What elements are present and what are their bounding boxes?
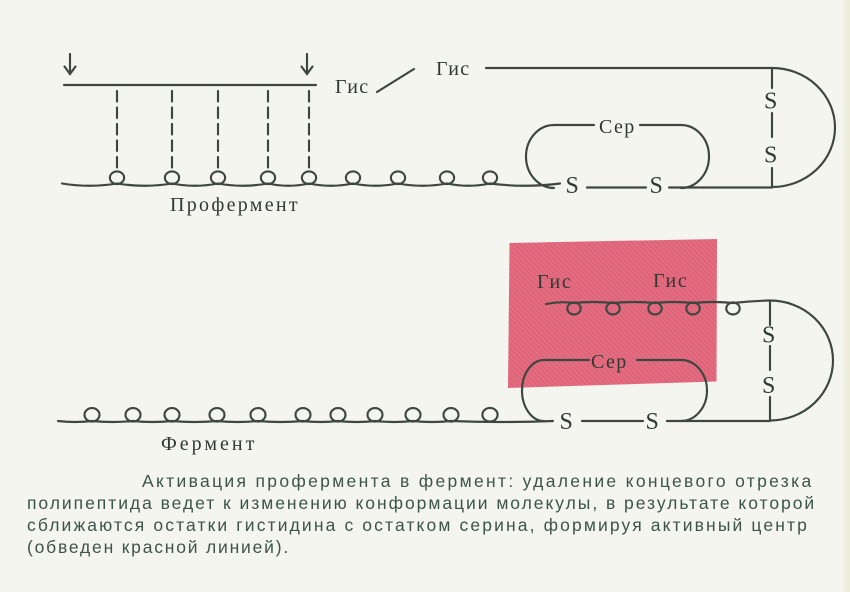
- svg-text:S: S: [764, 89, 777, 115]
- svg-text:Фермент: Фермент: [161, 433, 257, 455]
- svg-text:Гис: Гис: [335, 76, 370, 98]
- svg-text:Профермент: Профермент: [170, 194, 300, 216]
- svg-text:Сер: Сер: [599, 116, 636, 138]
- svg-text:S: S: [764, 143, 777, 169]
- svg-text:S: S: [762, 323, 775, 349]
- svg-text:Гис: Гис: [653, 270, 688, 292]
- svg-text:S: S: [646, 409, 659, 435]
- svg-text:S: S: [566, 173, 579, 199]
- svg-text:S: S: [762, 373, 775, 399]
- svg-text:S: S: [560, 409, 573, 435]
- svg-text:Гис: Гис: [537, 271, 572, 293]
- svg-text:S: S: [650, 173, 663, 199]
- svg-text:Сер: Сер: [591, 351, 628, 373]
- svg-text:Гис: Гис: [436, 58, 471, 80]
